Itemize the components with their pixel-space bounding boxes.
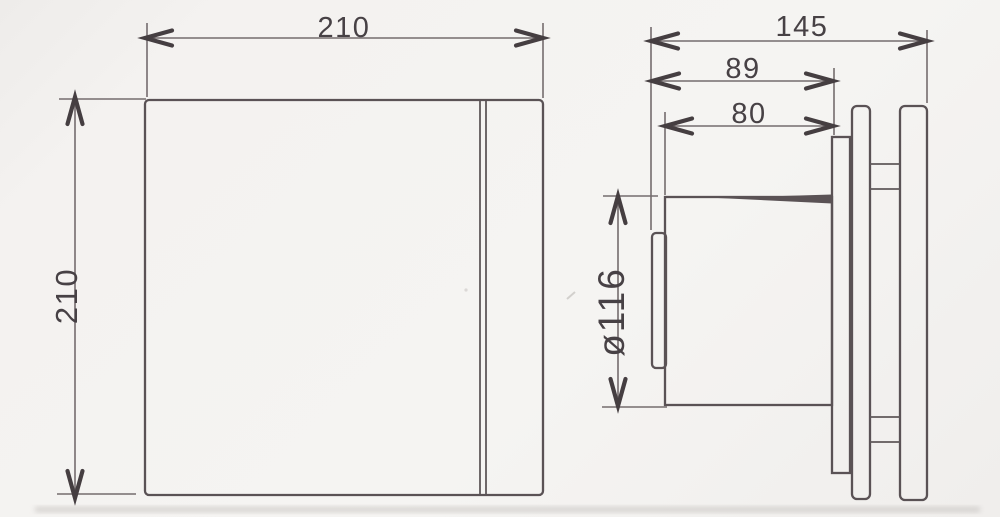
dim-label-depth-to-flange: 89 [725, 53, 760, 85]
dim-front-width: 210 [145, 12, 543, 98]
drawing-canvas: 210 210 [0, 0, 1000, 517]
dim-label-front-height: 210 [49, 268, 84, 324]
dim-spigot-diameter: ø116 [591, 196, 667, 407]
side-view: 145 89 80 ø116 [591, 11, 927, 500]
technical-drawing: 210 210 [0, 0, 1000, 517]
duct-spigot-outline [665, 197, 832, 405]
back-plate-outline [852, 106, 870, 499]
flange-plate-outline [832, 137, 850, 473]
dim-spigot-length: 80 [665, 98, 833, 195]
dim-label-overall-depth: 145 [776, 11, 829, 43]
scan-speck [464, 288, 467, 291]
scan-speck [567, 292, 575, 299]
front-view: 210 210 [49, 12, 543, 498]
dim-label-spigot-diameter: ø116 [591, 267, 632, 357]
front-panel-outline [145, 100, 543, 495]
dim-front-height: 210 [49, 97, 146, 498]
dim-label-front-width: 210 [318, 12, 371, 44]
scan-shadow-band [35, 507, 980, 512]
scan-artifacts [35, 288, 980, 512]
dim-label-spigot-length: 80 [731, 98, 766, 130]
front-cover-outline [900, 106, 927, 500]
